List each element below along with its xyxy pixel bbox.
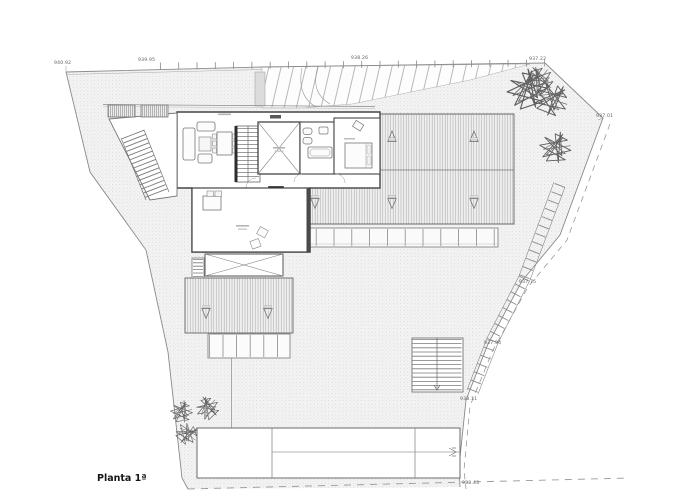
pergola-strip (108, 105, 135, 117)
floor-plan-page: 940.92 939.95 938.26 937.22 937.01 937.7… (0, 0, 700, 500)
pillow-icon (367, 156, 371, 165)
illegible-label (218, 114, 231, 116)
armchair-icon (198, 154, 212, 163)
illegible-label (236, 225, 249, 227)
interior-staircase (235, 126, 261, 182)
pillow-icon (367, 145, 371, 154)
bathroom (300, 122, 334, 174)
illegible-label (275, 151, 284, 152)
illegible-label (273, 147, 285, 149)
elevation-label: 940.92 (54, 60, 71, 66)
office-room (192, 188, 310, 252)
elevation-label: 937.75 (519, 279, 536, 285)
pergola-walkway (296, 228, 498, 247)
plan-title: Planta 1ª (97, 473, 147, 484)
elevation-label: 938.11 (460, 396, 477, 402)
dining-table-icon (217, 132, 232, 155)
illegible-label (270, 115, 281, 119)
exterior-staircase-right (412, 338, 463, 392)
pool (197, 428, 460, 478)
bedroom (334, 118, 380, 174)
elevation-label: 937.94 (484, 340, 501, 346)
coffee-table-icon (199, 137, 211, 151)
elevation-label: 938.26 (351, 55, 368, 61)
bidet-icon (303, 138, 312, 145)
bathtub-icon (308, 147, 332, 158)
floor-plan-drawing: 940.92 939.95 938.26 937.22 937.01 937.7… (0, 0, 700, 500)
elevation-label: 939.95 (138, 57, 155, 63)
driveway-planter (255, 72, 265, 106)
sofa-icon (197, 122, 215, 131)
elevation-label: 937.01 (596, 113, 613, 119)
elevation-label: 937.22 (529, 56, 546, 62)
illegible-label (344, 138, 355, 140)
desk-chair-icon (207, 191, 214, 197)
pergola-strip (141, 105, 168, 117)
desk-icon (203, 196, 221, 210)
illegible-label (238, 229, 247, 230)
office-right-wall (307, 188, 311, 252)
stair-wall (235, 126, 238, 182)
sofa-icon (183, 128, 195, 160)
patio-skylight (258, 122, 300, 174)
lower-terrace (185, 278, 293, 333)
sink-icon (319, 127, 328, 134)
desk-chair-icon (215, 191, 222, 197)
elevation-label: 938.43 (462, 480, 479, 486)
toilet-icon (303, 128, 312, 135)
